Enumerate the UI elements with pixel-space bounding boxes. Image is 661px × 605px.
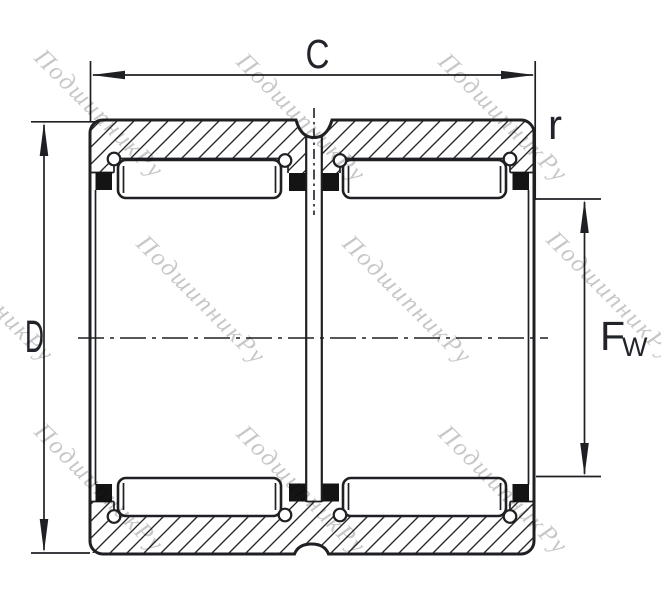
dimension-Fw: F W xyxy=(536,199,648,477)
cage-block-bottom-right xyxy=(513,484,530,502)
cage-block-bottom-center-left xyxy=(289,484,306,502)
arrowhead-Fw-bottom xyxy=(580,443,589,476)
cage-lip-bottom-left-inner xyxy=(279,509,292,522)
cage-lip-top-left-inner xyxy=(279,154,292,167)
cage-block-top-center-right xyxy=(323,173,340,191)
drawing-canvas: C D F W r ПодшипникРу ПодшипникРу Подшип… xyxy=(0,0,661,605)
roller-cage-top-right xyxy=(343,160,506,198)
bearing-cross-section-drawing: C D F W r xyxy=(0,0,661,605)
cage-section-blocks xyxy=(96,172,530,502)
cage-block-bottom-left xyxy=(96,484,113,502)
cage-lip-top-left-outer xyxy=(108,153,121,166)
arrowhead-C-right xyxy=(501,71,535,80)
cage-lip-bottom-right-outer xyxy=(504,510,517,523)
label-Fw-subscript: W xyxy=(622,332,648,362)
cage-lip-top-right-outer xyxy=(504,153,517,166)
cage-lip-bottom-left-outer xyxy=(108,510,121,523)
cage-block-top-left xyxy=(96,172,113,190)
cage-lip-top-right-inner xyxy=(334,154,347,167)
cage-lip-bottom-right-inner xyxy=(334,509,347,522)
roller-cage-bottom-left xyxy=(118,478,281,516)
cage-block-top-right xyxy=(513,172,530,190)
roller-cage-top-left xyxy=(118,160,281,198)
hatch-rib-bottom-center xyxy=(288,502,340,517)
cage-block-bottom-center-right xyxy=(323,484,340,502)
arrowhead-D-bottom xyxy=(40,519,49,552)
arrowhead-Fw-top xyxy=(580,200,589,233)
roller-cage-bottom-right xyxy=(343,478,506,516)
arrowhead-C-left xyxy=(92,71,126,80)
label-D: D xyxy=(25,311,44,362)
arrowhead-D-top xyxy=(40,123,49,157)
cage-block-top-center-left xyxy=(289,173,306,191)
label-C: C xyxy=(306,31,330,77)
label-r: r xyxy=(548,101,562,148)
